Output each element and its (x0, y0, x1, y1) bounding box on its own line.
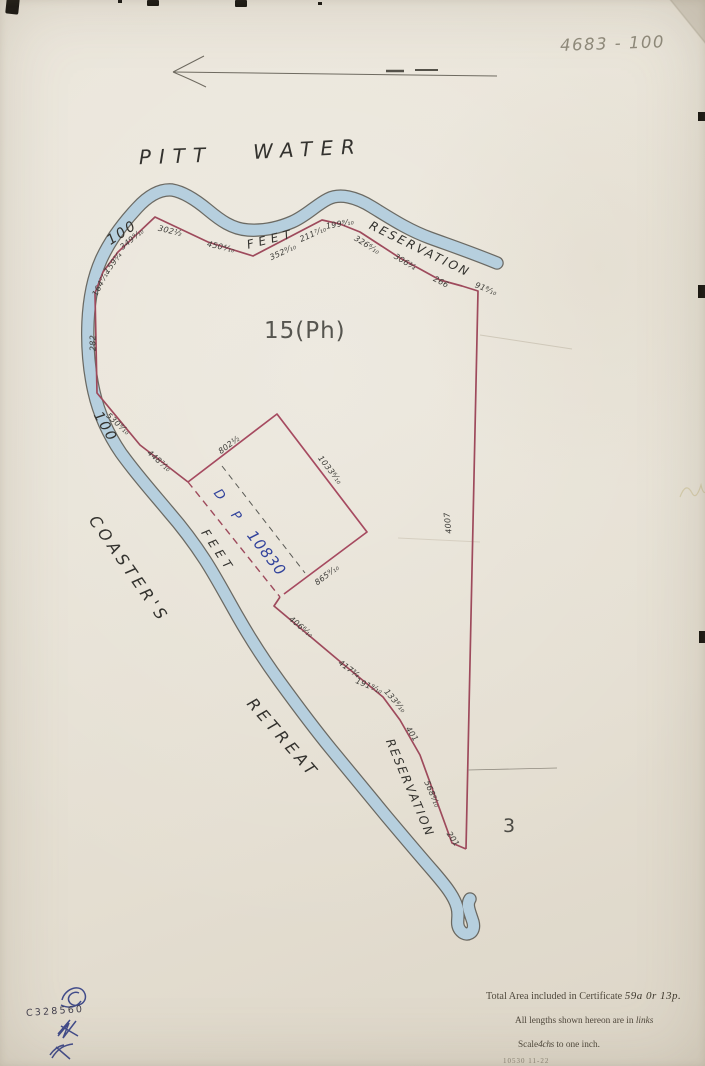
tie-line (468, 768, 557, 770)
north-arrow (173, 56, 497, 87)
paper-crease (398, 538, 480, 542)
shoreline-outline (88, 190, 497, 934)
adjoining-lot-label: 3 (503, 815, 515, 837)
lengths-note: All lengths shown hereon are in links (515, 1016, 653, 1026)
scale-note: Scale4chs to one inch. (518, 1040, 600, 1050)
lengths-prefix: All lengths shown hereon are in (515, 1016, 634, 1026)
scale-prefix: Scale (518, 1040, 538, 1050)
scale-value: 4chs (538, 1040, 554, 1050)
total-area-note: Total Area included in Certificate 59a 0… (486, 990, 681, 1002)
water-band (88, 190, 497, 934)
scanned-survey-plan: 4683 - 100 PITT WATER 100 FEET RESERVATI… (0, 0, 705, 1066)
plan-reference-number: 4683 - 100 (560, 32, 666, 55)
water-name-pitt: PITT (138, 143, 213, 170)
paper-crease (480, 335, 572, 349)
measurement-label: 282 (89, 335, 98, 351)
total-area-prefix: Total Area included in Certificate (486, 991, 622, 1002)
ink-initials-scribble (50, 988, 85, 1059)
portion-label: 15(Ph) (264, 318, 346, 344)
printers-code: 10530 11-22 (503, 1057, 549, 1065)
total-area-value: 59a 0r 13p. (625, 990, 682, 1002)
pencil-squiggle (680, 485, 705, 497)
dp-letter-p: P (227, 508, 244, 523)
scale-suffix: to one inch. (556, 1040, 600, 1050)
lengths-unit: links (636, 1016, 654, 1026)
